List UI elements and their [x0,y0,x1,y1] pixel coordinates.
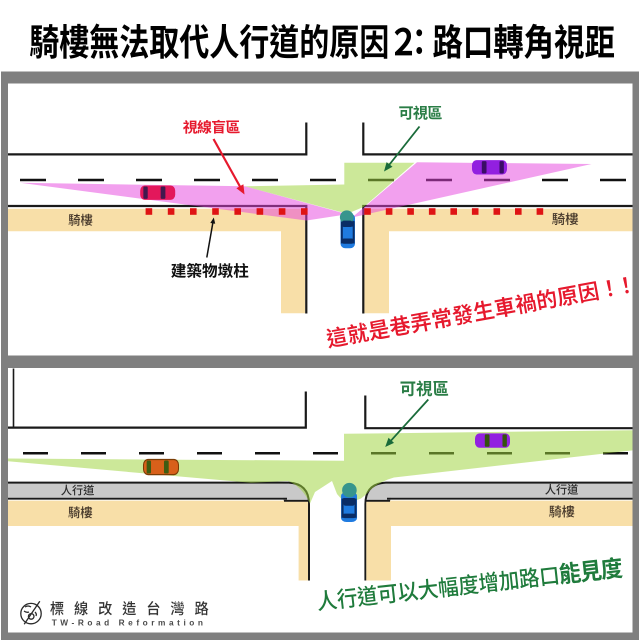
svg-text:TW-Road Reformation: TW-Road Reformation [52,617,207,627]
